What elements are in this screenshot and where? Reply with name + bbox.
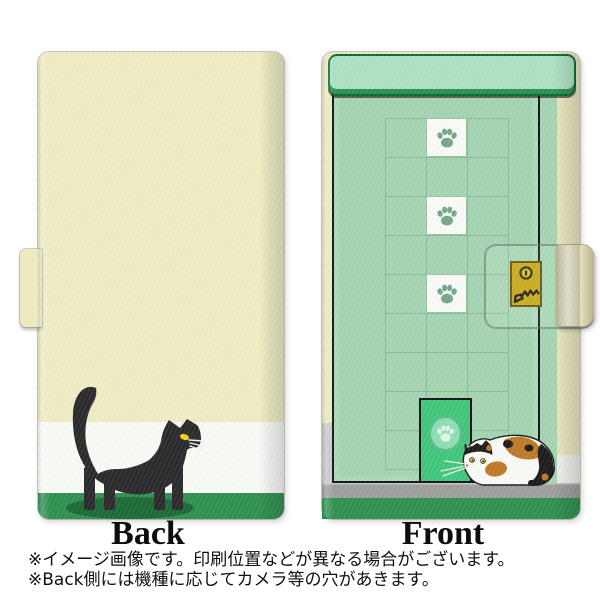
phone-case-front-view: [322, 52, 580, 519]
front-view-label: Front: [320, 515, 566, 553]
magnet-strap: [484, 244, 594, 329]
back-view-label: Back: [25, 515, 271, 553]
calico-whiskers: [441, 461, 466, 476]
strap-tab: [556, 244, 594, 327]
disclaimer-note-1: ※イメージ画像です。印刷位置などが異なる場合がございます。: [28, 551, 515, 571]
black-cat-illustration: [38, 52, 284, 519]
phone-case-back-view: [38, 52, 284, 519]
product-mockup-image: Back Front ※イメージ画像です。印刷位置などが異なる場合がございます。…: [0, 0, 600, 600]
disclaimer-note-2: ※Back側には機種に応じてカメラ等の穴があきます。: [28, 571, 439, 591]
